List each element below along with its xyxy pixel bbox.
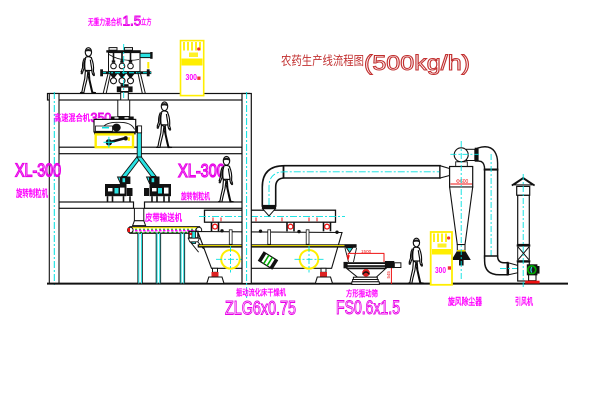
svg-text:XL-300: XL-300	[178, 161, 225, 181]
svg-text:旋转制粒机: 旋转制粒机	[15, 187, 48, 200]
svg-text:振动流化床干燥机: 振动流化床干燥机	[236, 288, 286, 298]
svg-text:立方: 立方	[141, 17, 152, 27]
svg-text:旋风除尘器: 旋风除尘器	[447, 296, 482, 308]
svg-text:农药生产线流程图: 农药生产线流程图	[281, 53, 364, 68]
svg-text:旋转制粒机: 旋转制粒机	[180, 191, 210, 202]
svg-text:300: 300	[435, 266, 446, 275]
svg-text:ZLG6x0.75: ZLG6x0.75	[225, 299, 296, 320]
svg-text:方形振动筛: 方形振动筛	[346, 289, 378, 299]
svg-text:1.5: 1.5	[123, 14, 142, 29]
svg-text:Φ600: Φ600	[456, 179, 469, 185]
svg-text:545: 545	[386, 271, 391, 279]
svg-text:引风机: 引风机	[515, 296, 533, 308]
svg-text:(500kg/h): (500kg/h)	[364, 52, 470, 75]
svg-text:无重力混合机: 无重力混合机	[87, 17, 122, 27]
svg-text:高速混合机: 高速混合机	[54, 112, 90, 123]
svg-text:FS0.6x1.5: FS0.6x1.5	[336, 298, 400, 319]
svg-text:皮带输送机: 皮带输送机	[144, 212, 182, 224]
svg-text:300: 300	[186, 72, 198, 82]
svg-text:XL-300: XL-300	[15, 161, 61, 181]
svg-text:1500: 1500	[361, 249, 372, 254]
